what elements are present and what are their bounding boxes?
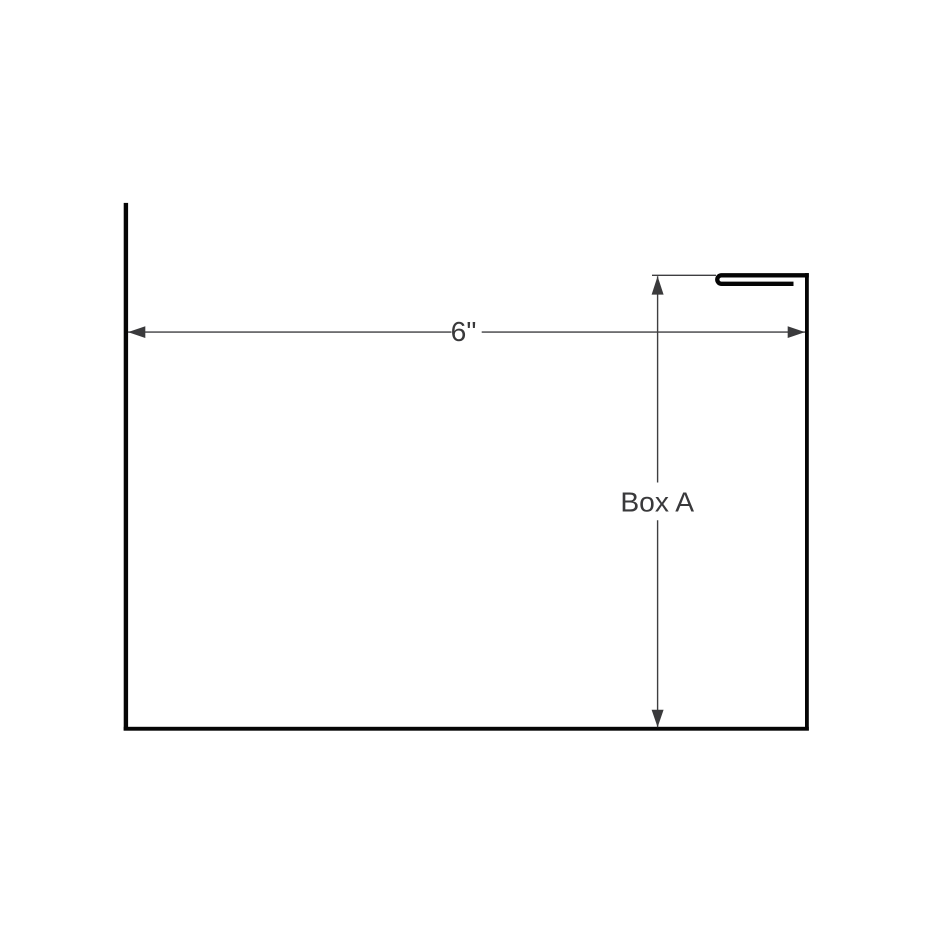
svg-text:6": 6" (451, 315, 477, 347)
svg-text:Box A: Box A (620, 485, 694, 517)
